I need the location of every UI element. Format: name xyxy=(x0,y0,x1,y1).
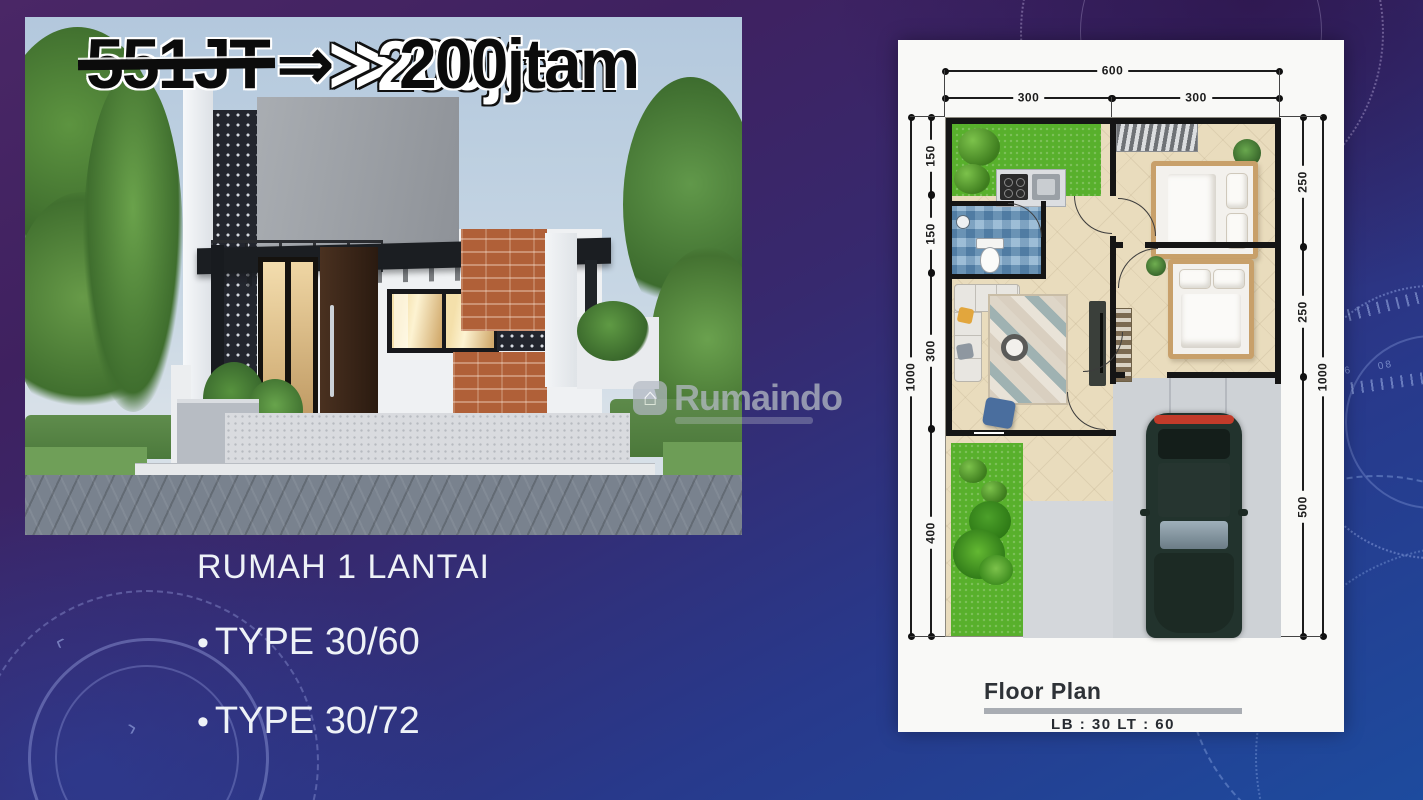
dim-connector xyxy=(910,636,945,637)
pillow xyxy=(1179,269,1211,289)
dim-label: 250 xyxy=(1296,296,1309,328)
listing-type-label: TYPE 30/72 xyxy=(215,700,420,743)
bullet-dot: • xyxy=(197,705,209,739)
decor-arrowhead-left: ‹ xyxy=(52,629,68,654)
dim-label: 1000 xyxy=(1316,358,1329,397)
decor-ruler-ticks xyxy=(1347,291,1423,321)
brick-accent-lower xyxy=(453,352,547,416)
stove-burner xyxy=(1004,189,1013,198)
bedroom1-rug xyxy=(1116,123,1198,152)
wall-carport xyxy=(1167,372,1281,378)
stove-burner xyxy=(1016,189,1025,198)
dim-connector xyxy=(1279,70,1280,117)
car-taillights xyxy=(1154,415,1234,424)
wall-living-bottom xyxy=(946,430,974,436)
decor-arrowhead-right: › xyxy=(125,715,139,740)
dim-right-1: 250 xyxy=(1302,117,1304,247)
garden-bush xyxy=(958,128,1000,166)
dim-top-total: 600 xyxy=(945,70,1280,72)
listing-details: RUMAH 1 LANTAI • TYPE 30/60 • TYPE 30/72 xyxy=(197,548,490,779)
stove xyxy=(1000,174,1028,200)
dim-label: 1000 xyxy=(904,358,917,397)
dim-left-total: 1000 xyxy=(910,117,912,637)
watermark-name: Rumaindo xyxy=(674,377,842,419)
dim-connector xyxy=(1280,116,1322,117)
sink-basin xyxy=(1037,179,1055,195)
dim-label: 150 xyxy=(924,218,937,250)
dim-left-3: 300 xyxy=(930,273,932,429)
stove-burner xyxy=(1016,178,1025,187)
dim-top-left: 300 xyxy=(945,97,1112,99)
wall-bathroom-top xyxy=(946,201,1014,206)
listing-type-label: TYPE 30/60 xyxy=(215,621,420,664)
door-handle xyxy=(330,305,334,397)
price-headline: 551JT ⇒ ≫ 200jtam 200jtam xyxy=(86,20,638,108)
window-opening xyxy=(974,430,1004,436)
parapet-wall xyxy=(545,233,577,387)
blanket xyxy=(1181,294,1241,348)
dim-label: 150 xyxy=(924,140,937,172)
new-price-wrap: 200jtam 200jtam xyxy=(399,20,638,108)
dim-label: 250 xyxy=(1296,166,1309,198)
carport xyxy=(1113,378,1281,638)
dim-left-1: 150 xyxy=(930,117,932,195)
curtain xyxy=(394,294,408,348)
stove-burner xyxy=(1004,178,1013,187)
car xyxy=(1146,413,1242,638)
dim-connector xyxy=(944,70,945,117)
watermark: ⌂ Rumaindo xyxy=(633,377,842,419)
dim-label: 300 xyxy=(1180,91,1212,104)
garden-bush xyxy=(959,459,987,483)
dim-right-total: 1000 xyxy=(1322,117,1324,637)
garden-bush xyxy=(954,164,990,194)
old-price-wrap: 551JT xyxy=(86,20,269,108)
palm-plant xyxy=(979,555,1013,585)
floor-plan-area-note: LB : 30 LT : 60 xyxy=(984,716,1242,733)
floor-plan-area xyxy=(945,117,1280,637)
coffee-table xyxy=(1001,334,1028,361)
sofa-pillow-yellow xyxy=(957,307,975,325)
dim-connector xyxy=(1280,636,1322,637)
car-mirror xyxy=(1238,509,1248,516)
upper-facade-box xyxy=(257,97,459,249)
garden-bottom xyxy=(951,443,1023,636)
dim-right-3: 500 xyxy=(1302,377,1304,637)
dim-label: 500 xyxy=(1296,491,1309,523)
door-arc-entry xyxy=(1074,196,1112,234)
wall-bedroom-divider xyxy=(1145,242,1281,248)
pillow xyxy=(1213,269,1245,289)
wall-living-bottom xyxy=(1004,430,1116,436)
new-price: 200jtam xyxy=(399,24,638,103)
listing-type-item: • TYPE 30/72 xyxy=(197,700,490,743)
kitchen-sink xyxy=(1032,174,1060,200)
tree-foliage xyxy=(83,72,183,412)
wall-center-upper xyxy=(1110,118,1116,196)
wall-center-lower xyxy=(1110,236,1116,384)
watermark-tagline-bar xyxy=(675,417,813,424)
dim-connector xyxy=(910,116,945,117)
floor-plan-card: 600 300 300 1000 150 150 300 400 250 250… xyxy=(898,40,1344,732)
dim-left-4: 400 xyxy=(930,429,932,637)
walkway xyxy=(1023,501,1113,638)
house-icon: ⌂ xyxy=(633,381,667,415)
planter-shrub xyxy=(577,301,649,361)
dim-label: 300 xyxy=(924,335,937,367)
price-arrow: ⇒ ≫ xyxy=(277,20,393,108)
dim-label: 400 xyxy=(924,517,937,549)
listing-title: RUMAH 1 LANTAI xyxy=(197,548,490,587)
wall-carport xyxy=(1113,372,1125,378)
dim-label: 600 xyxy=(1097,64,1129,77)
bullet-dot: • xyxy=(197,626,209,660)
car-hood xyxy=(1154,553,1234,633)
car-windshield xyxy=(1160,521,1228,549)
arrow-solid-glyph: ⇒ xyxy=(277,20,328,108)
dim-left-2: 150 xyxy=(930,195,932,273)
pillow xyxy=(1226,173,1248,209)
front-door xyxy=(320,247,378,431)
blanket xyxy=(1168,174,1216,246)
street-paving xyxy=(25,475,742,535)
door-arc-terrace xyxy=(1067,392,1105,430)
wall-bathroom-bottom xyxy=(946,274,1046,279)
car-rear-window xyxy=(1158,429,1230,459)
garden-bush xyxy=(981,481,1007,503)
dim-label: 300 xyxy=(1013,91,1045,104)
floor-cushion xyxy=(982,397,1016,430)
floor-plan-title-rule xyxy=(984,708,1242,714)
floor-plan-title: Floor Plan xyxy=(984,678,1101,705)
wall-bathroom-right xyxy=(1041,201,1046,279)
car-roof xyxy=(1158,463,1230,517)
shower-head xyxy=(956,215,970,229)
wall-right xyxy=(1275,118,1281,384)
bed xyxy=(1168,259,1254,359)
dim-top-right: 300 xyxy=(1112,97,1280,99)
terrace-paving xyxy=(225,413,630,469)
wall-bedroom-divider xyxy=(1113,242,1123,248)
decor-tick-label: 08 xyxy=(1377,359,1394,373)
decor-ruler-ticks xyxy=(1341,372,1423,395)
toilet-bowl xyxy=(980,247,1000,273)
listing-type-item: • TYPE 30/60 xyxy=(197,621,490,664)
car-mirror xyxy=(1140,509,1150,516)
dim-connector xyxy=(1111,97,1112,117)
slide-canvas: 06 08 ‹ › xyxy=(0,0,1423,800)
brick-accent-upper xyxy=(461,229,547,331)
door-arc-bedroom2 xyxy=(1118,248,1158,288)
sofa-pillow-gray xyxy=(956,343,974,361)
dim-right-2: 250 xyxy=(1302,247,1304,377)
living-rug xyxy=(988,294,1068,405)
